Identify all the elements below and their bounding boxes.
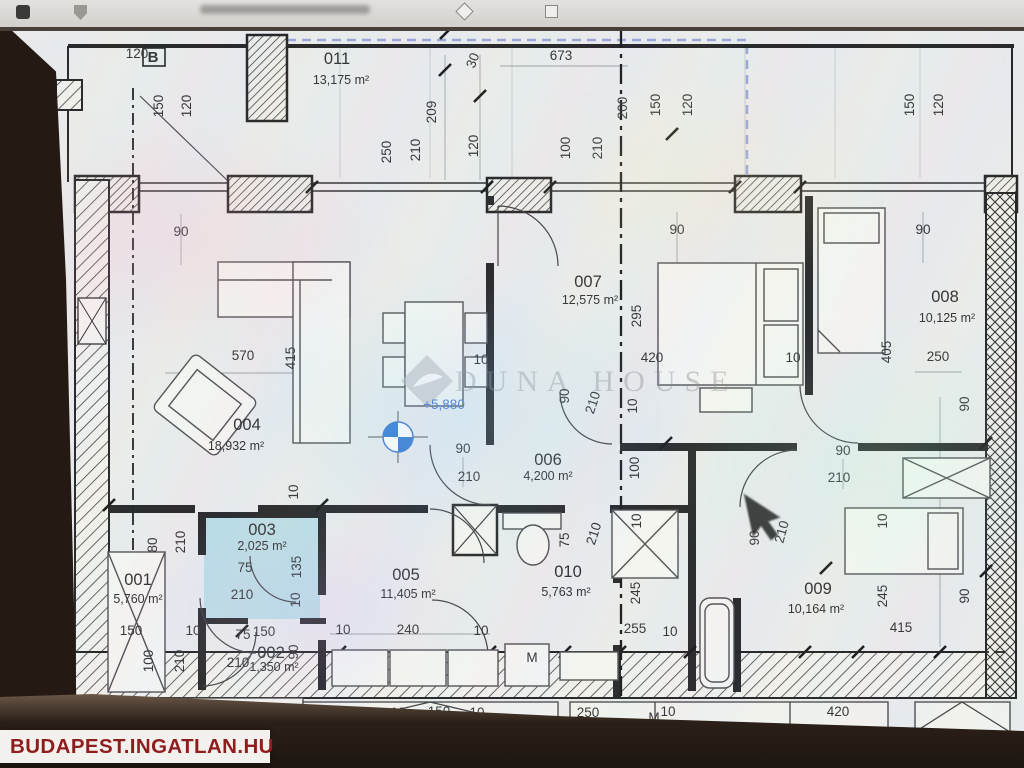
browser-bar [0,0,1024,31]
room-number: 009 [804,580,832,598]
dim-label: 10 [785,350,800,365]
kitchen-counter [332,650,498,686]
room-area: 18,932 m² [208,439,264,453]
dim-label: 150 [151,95,166,118]
room-area: 1,350 m² [249,660,298,674]
room-number: 010 [554,563,582,581]
dim-label: 415 [283,347,298,370]
room-number: 011 [324,50,350,68]
dim-label: 210 [583,521,604,547]
dim-label: 150 [648,94,663,117]
room-area: 11,405 m² [380,587,435,601]
site-logo-text: BUDAPEST.INGATLAN.HU [10,735,274,759]
dim-label: 90 [286,644,301,659]
dim-label: M [526,650,537,665]
dim-label: 210 [172,650,187,673]
dim-label: +5,880 [423,397,465,412]
dim-label: 570 [232,348,255,363]
dim-label: 75 [557,532,572,547]
dim-label: 245 [875,585,890,608]
dim-label: 90 [557,388,572,403]
dim-label: 250 [927,349,950,364]
shield-icon[interactable] [74,5,87,20]
stop-icon[interactable] [545,5,558,18]
dim-label: 210 [408,139,423,162]
dim-label: 405 [879,341,894,364]
room-number: 007 [574,273,602,291]
dim-label: 120 [466,135,481,158]
dim-label: 295 [629,305,644,328]
dim-label: 10 [662,624,677,639]
dim-label: 150 [120,623,143,638]
photographed-screenshot: DUNA HOUSE 100120B1501202093067325021012… [0,0,1024,768]
room-number: 005 [392,566,420,584]
dim-label: 10 [335,622,350,637]
dim-label: 120 [931,94,946,117]
room-number: 008 [931,288,959,306]
dim-label: 150 [902,94,917,117]
dim-label: 75 [237,560,252,575]
dim-label: 90 [669,222,684,237]
dim-label: 75 [235,627,250,642]
dim-label: 420 [641,350,664,365]
room-area: 12,575 m² [562,293,618,307]
dim-label: 90 [957,396,972,411]
room-number: 003 [248,521,276,539]
room-number: 006 [534,451,562,469]
dim-label: 250 [379,141,394,164]
room-area: 13,175 m² [313,73,369,87]
elevation-marker-center [368,411,428,463]
dim-label: 673 [550,48,573,63]
dim-label: 10 [185,623,200,638]
room-number: 004 [233,416,261,434]
dim-label: 10 [288,592,303,607]
dim-label: 415 [890,620,913,635]
dim-label: 10 [660,704,675,719]
diamond-icon[interactable] [455,2,473,20]
dim-label: 90 [455,441,470,456]
room-area: 2,025 m² [237,539,286,553]
site-logo: BUDAPEST.INGATLAN.HU [0,730,270,763]
room-area: 5,763 m² [541,585,590,599]
dim-label: 210 [590,137,605,160]
dim-label: 209 [424,101,439,124]
dim-label: 10 [629,513,644,528]
favicon-icon[interactable] [16,5,30,19]
dim-label: 80 [145,537,160,552]
dim-label: 210 [828,470,851,485]
dim-label: 120 [126,46,149,61]
dim-label: 420 [827,704,850,719]
dim-label: 90 [957,588,972,603]
bathroom-fixtures [503,510,734,688]
dim-label: 135 [289,556,304,579]
room-number: 001 [124,571,152,589]
dim-label: 120 [179,95,194,118]
dim-label: 10 [473,623,488,638]
dim-label: 100 [141,650,156,673]
room-area: 5,760 m² [113,592,162,606]
dim-label: 10 [625,398,640,413]
dim-label: 245 [628,582,643,605]
dim-label: 210 [227,655,250,670]
dim-label: 240 [397,622,420,637]
dim-label: 255 [624,621,647,636]
dim-label: 10 [473,352,488,367]
dim-label: 90 [173,224,188,239]
single-bed-right [845,508,963,574]
single-bed-top [818,208,885,353]
dim-label: B [148,49,159,66]
dim-label: 210 [173,531,188,554]
room-area: 10,125 m² [919,311,975,325]
dim-label: 100 [558,137,573,160]
dim-label: 210 [231,587,254,602]
room-area: 10,164 m² [788,602,844,616]
dim-label: 90 [835,443,850,458]
floor-plan: DUNA HOUSE 100120B1501202093067325021012… [0,27,1024,768]
dim-label: 10 [875,513,890,528]
room-area: 4,200 m² [523,469,572,483]
dim-label: 10 [286,484,301,499]
dim-label: 30 [463,51,482,70]
dim-label: 90 [915,222,930,237]
address-bar-blurred-url[interactable] [200,5,370,14]
dim-label: 200 [615,97,630,120]
dim-label: 150 [253,624,276,639]
dim-label: 210 [458,469,481,484]
dim-label: 100 [627,457,642,480]
wardrobe-009 [903,458,990,498]
dim-label: 120 [680,94,695,117]
